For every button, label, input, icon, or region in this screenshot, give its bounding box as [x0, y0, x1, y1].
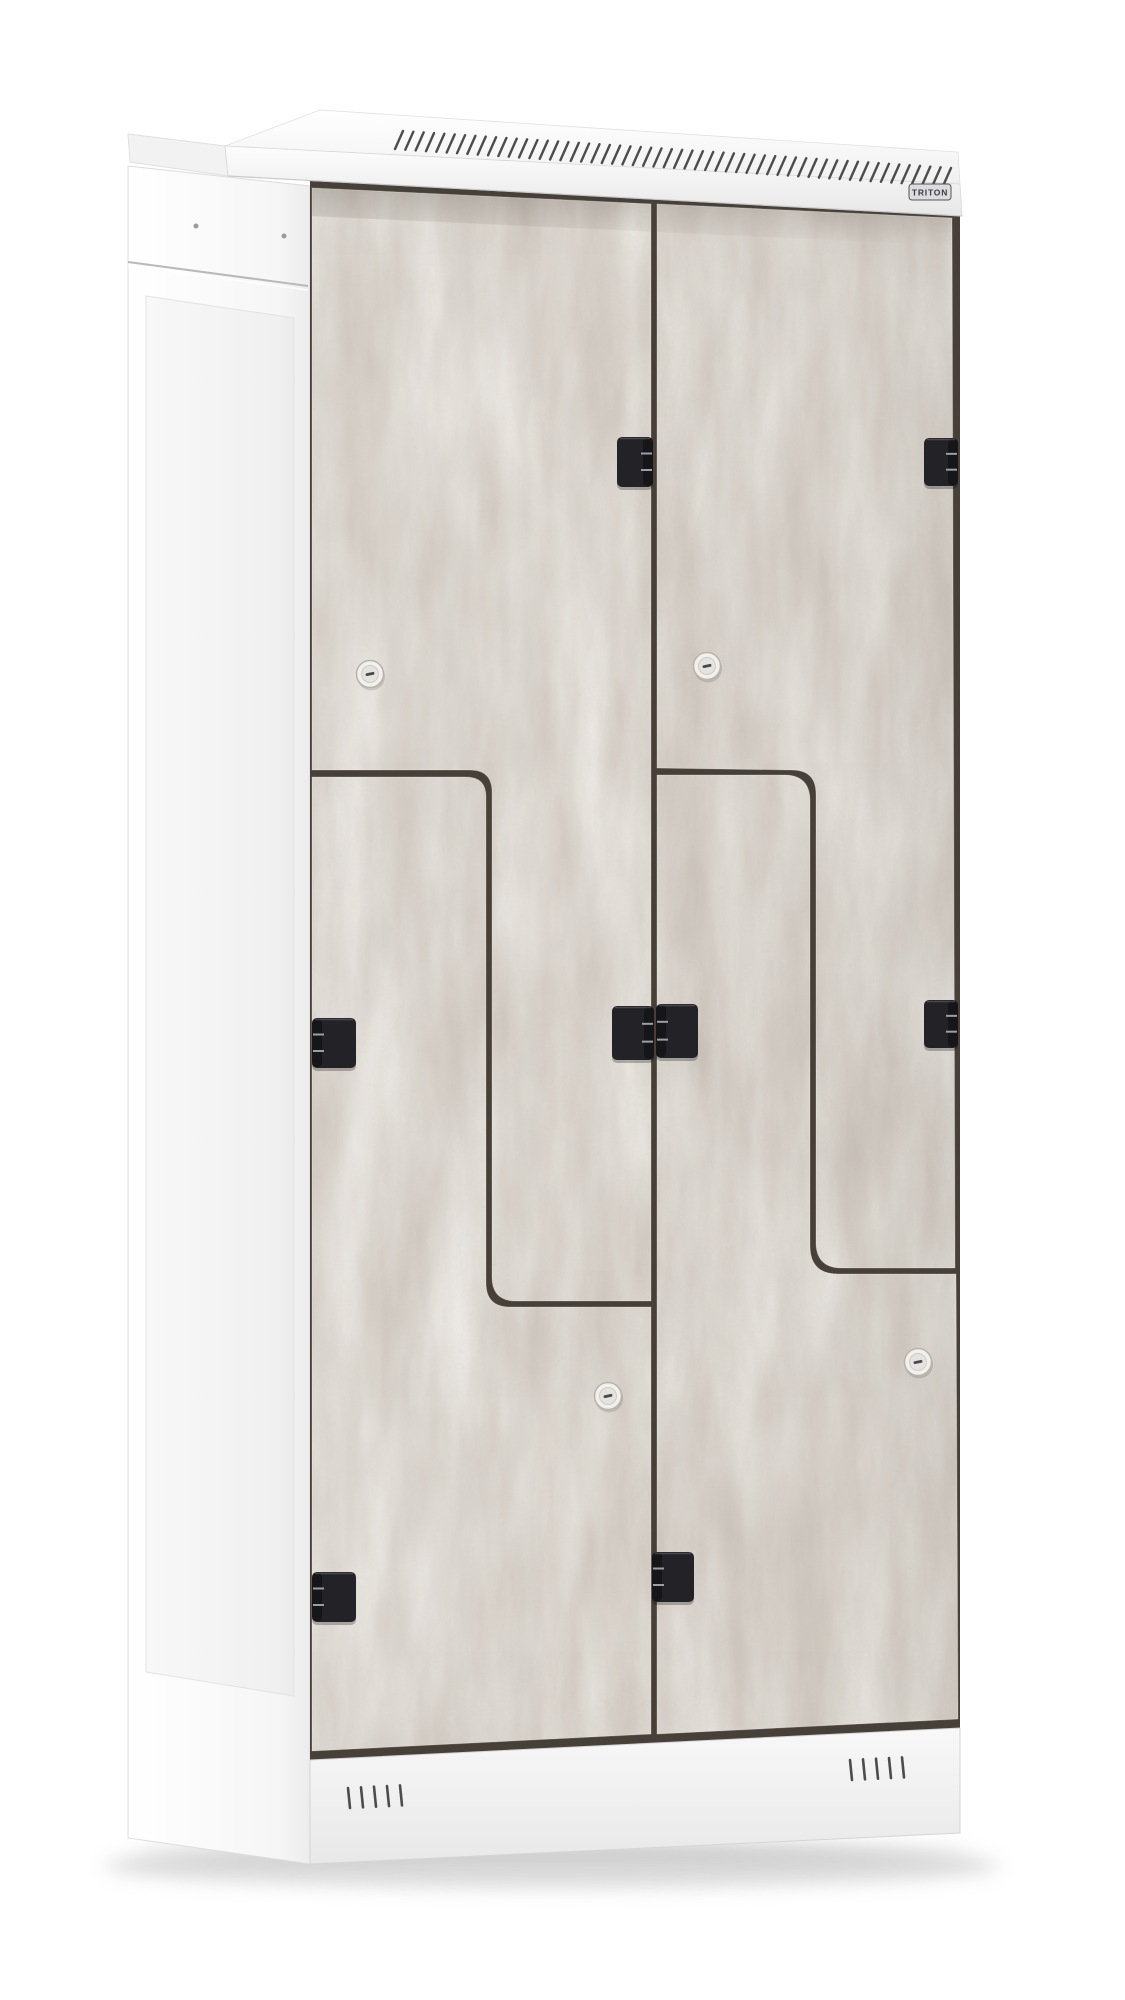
side-panel-recessed-field [146, 296, 294, 1696]
door-hinge [924, 1000, 958, 1051]
lock-cylinder [694, 653, 723, 683]
lock-cylinder [905, 1349, 934, 1379]
hinge-knuckle-strip [643, 438, 653, 486]
door-hinge [612, 1006, 654, 1063]
doors [300, 175, 970, 1765]
locker-illustration: TRITON [0, 0, 1125, 2000]
lock-cylinder [357, 661, 386, 691]
hinge-knuckle-strip [312, 1019, 322, 1067]
left-side-panel [128, 166, 310, 1864]
hinge-knuckle-strip [644, 1007, 654, 1059]
door-hinge [924, 438, 958, 489]
screw-dot [194, 224, 199, 229]
concrete-texture [300, 175, 970, 1765]
lock-cylinder [595, 1383, 624, 1413]
brand-badge: TRITON [909, 184, 951, 200]
hinge-knuckle-strip [312, 1573, 322, 1621]
hinge-knuckle-strip [948, 439, 958, 485]
door-hinge [617, 437, 653, 490]
hinge-knuckle-strip [948, 1001, 958, 1047]
door-hinge [312, 1572, 356, 1625]
hinge-knuckle-strip [652, 1553, 662, 1601]
screw-dot [282, 234, 287, 239]
product-photo-canvas: TRITON [0, 0, 1125, 2000]
hinge-knuckle-strip [656, 1005, 666, 1057]
brand-badge-label: TRITON [912, 188, 948, 198]
door-hinge [656, 1004, 698, 1061]
door-hinge [652, 1552, 694, 1605]
door-hinge [312, 1018, 356, 1071]
